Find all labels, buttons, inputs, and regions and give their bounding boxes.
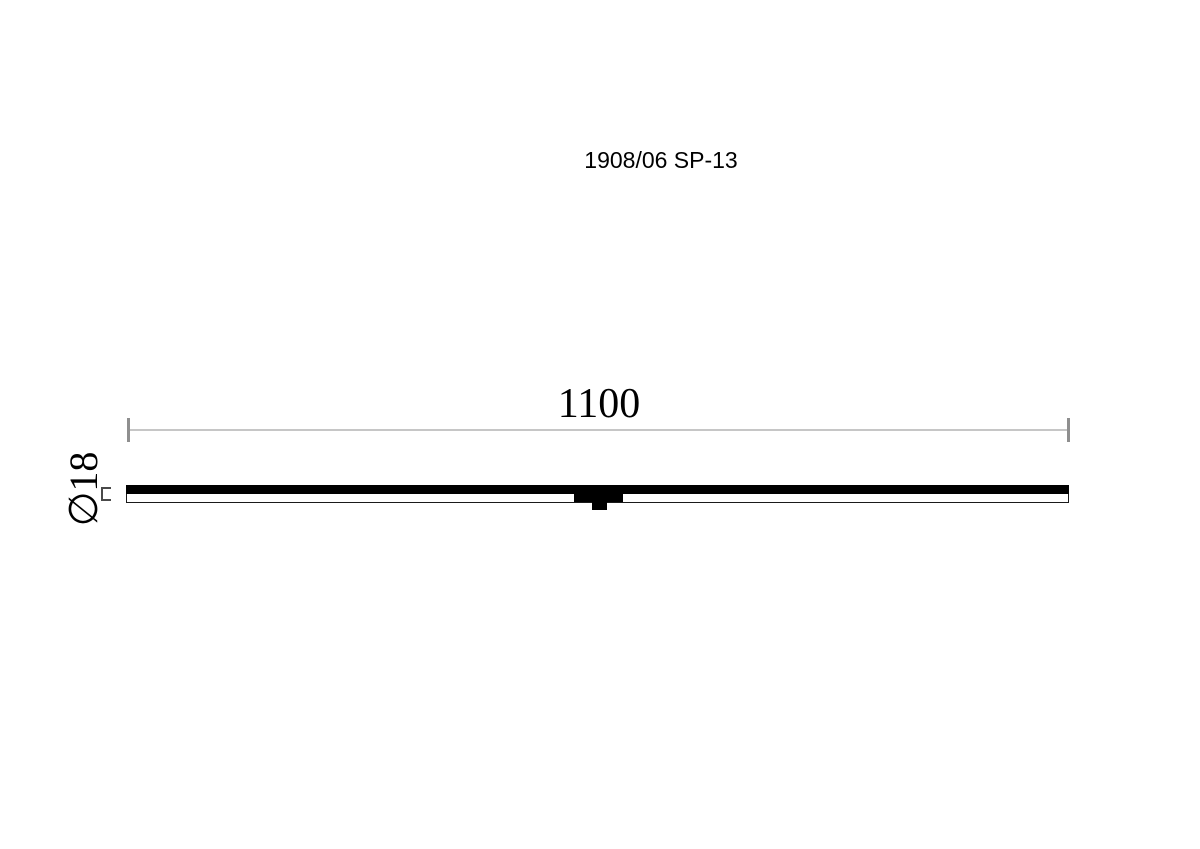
drawing-title: 1908/06 SP-13 [584, 147, 737, 174]
length-dimension-tick-right [1067, 418, 1070, 442]
diameter-dimension-tick-top [101, 487, 111, 489]
length-dimension-tick-left [127, 418, 130, 442]
technical-drawing-canvas: 1908/06 SP-13 1100 ∅18 [0, 0, 1200, 849]
length-dimension-label: 1100 [558, 383, 640, 425]
rod-center-bracket-stub [592, 501, 607, 510]
length-dimension-line [128, 429, 1069, 431]
diameter-dimension-label: ∅18 [64, 452, 104, 527]
diameter-dimension-tick-bottom [101, 499, 111, 501]
